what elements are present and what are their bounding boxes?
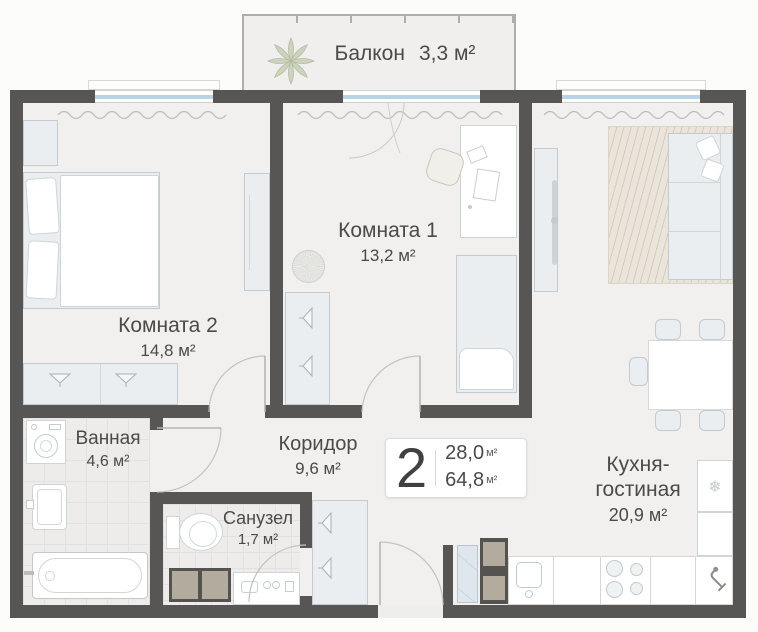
- wall-south-room2: [23, 405, 210, 418]
- wall-between-rooms: [270, 103, 283, 405]
- wall-bathroom-right: [150, 492, 163, 605]
- hall-mirror: [457, 545, 478, 603]
- wall-south-room1: [420, 405, 532, 418]
- floor-plan-canvas: Балкон 3,3 м²: [0, 0, 758, 632]
- room2-area: 14,8 м²: [68, 341, 268, 361]
- counter-divider: [553, 557, 554, 604]
- sofa-backrest-line: [720, 134, 721, 279]
- room1-name: Комната 1: [288, 218, 488, 243]
- bathroom-name: Ванная: [60, 428, 156, 451]
- living-area-unit: м²: [486, 441, 497, 465]
- washer-knob: [31, 424, 37, 430]
- toilet-tank: [166, 516, 180, 549]
- window-glass: [95, 95, 213, 99]
- living-area-value: 28,0: [445, 441, 484, 465]
- bed-blanket: [60, 175, 159, 307]
- stove-burner-icon: [606, 560, 623, 577]
- wc-name: Санузел: [210, 508, 306, 530]
- desk-paper: [473, 168, 500, 201]
- wc-label: Санузел 1,7 м²: [210, 508, 306, 549]
- bathroom-label: Ванная 4,6 м²: [60, 428, 156, 471]
- hall-shelf-panel: [483, 576, 505, 600]
- tv-knob: [551, 217, 558, 224]
- sofa-cushion-line: [669, 182, 720, 183]
- wall-room1-kitchen: [519, 103, 532, 405]
- total-area-value: 64,8: [445, 468, 484, 492]
- total-area-unit: м²: [486, 468, 497, 492]
- snowflake-icon: ❄: [708, 477, 721, 496]
- hanger-icon: [317, 510, 333, 536]
- sink-tap-icon: [26, 500, 34, 509]
- window-room2: [95, 90, 213, 103]
- hall-shelf-panel: [483, 542, 505, 566]
- corridor-label: Коридор 9,6 м²: [268, 432, 368, 479]
- wardrobe-handle: [249, 195, 250, 270]
- counter-divider: [600, 557, 601, 604]
- stove-burner-icon: [630, 582, 643, 595]
- vanity-knob: [272, 581, 280, 589]
- sink-basin: [516, 562, 542, 588]
- plate-divider: [435, 450, 436, 486]
- hanger-icon: [298, 305, 314, 331]
- hanger-icon: [47, 372, 73, 388]
- room1-label: Комната 1 13,2 м²: [288, 218, 488, 267]
- window-glass: [562, 95, 700, 99]
- bed-pillow: [26, 240, 60, 300]
- counter-divider: [695, 557, 696, 604]
- sink-drain: [525, 590, 533, 598]
- wall-south-center: [265, 405, 362, 418]
- bathtub-tap-icon: [24, 571, 34, 575]
- balcony-railing-ticks: [244, 16, 514, 23]
- wc-cabinet-door: [202, 571, 228, 599]
- corridor-name: Коридор: [268, 432, 368, 456]
- window-glass: [343, 95, 480, 99]
- dining-chair: [699, 410, 725, 431]
- faucet-icon: [700, 563, 730, 597]
- dining-chair: [655, 410, 681, 431]
- entrance-opening: [378, 605, 443, 618]
- window-sill: [88, 80, 220, 90]
- vanity-knob: [263, 581, 271, 589]
- desk-dot: [468, 205, 472, 209]
- wc-cabinet: [169, 568, 231, 602]
- wardrobe-room2: [244, 173, 270, 291]
- hanger-icon: [298, 353, 314, 379]
- dining-chair: [655, 319, 681, 340]
- room1-area: 13,2 м²: [288, 246, 488, 266]
- hanger-icon: [113, 372, 139, 388]
- dining-chair: [629, 357, 648, 386]
- hanger-icon: [317, 555, 333, 581]
- wall-wc-right-stub: [300, 596, 312, 605]
- bathroom-sink: [32, 484, 67, 530]
- hall-shelf-unit: [480, 538, 508, 604]
- stove-burner-icon: [630, 563, 643, 576]
- rooms-count: 2: [396, 440, 427, 496]
- room2-name: Комната 2: [68, 313, 268, 338]
- bed-pillow: [25, 177, 60, 235]
- window-balcony-door: [343, 90, 480, 103]
- bathroom-area: 4,6 м²: [60, 452, 156, 471]
- room2-label: Комната 2 14,8 м²: [68, 313, 268, 362]
- sink-bowl: [37, 489, 62, 525]
- dining-chair: [699, 319, 725, 340]
- nightstand: [23, 120, 58, 166]
- vanity-box: [285, 581, 294, 592]
- soap-dish: [241, 581, 258, 593]
- balcony-name: Балкон: [335, 42, 405, 66]
- window-kitchen: [562, 90, 700, 103]
- dresser-divider: [100, 364, 101, 404]
- wc-cabinet-door: [172, 571, 198, 599]
- stove-burner-icon: [606, 581, 623, 598]
- wall-hall-stub: [443, 545, 453, 605]
- kitchen-living-name: Кухня-гостиная: [572, 452, 704, 502]
- corridor-area: 9,6 м²: [268, 459, 368, 479]
- balcony-label: Балкон 3,3 м²: [300, 42, 510, 66]
- wc-vanity: [233, 572, 300, 605]
- sofa-cushion-line: [669, 231, 720, 232]
- apartment-info-plate: 2 28,0 м² 64,8 м²: [385, 438, 527, 498]
- washer-drum-inner: [40, 440, 52, 452]
- dining-table: [648, 340, 733, 410]
- counter-divider: [650, 557, 651, 604]
- balcony-area-value: 3,3 м²: [419, 42, 475, 66]
- bathtub-drain: [45, 571, 55, 581]
- wall-wc-top: [163, 492, 312, 504]
- kitchen-living-area: 20,9 м²: [572, 505, 704, 527]
- wc-area: 1,7 м²: [210, 531, 306, 549]
- kitchen-living-label: Кухня-гостиная 20,9 м²: [572, 452, 704, 527]
- single-bed-blanket: [459, 348, 514, 390]
- window-sill: [556, 80, 706, 90]
- bathtub: [32, 552, 148, 599]
